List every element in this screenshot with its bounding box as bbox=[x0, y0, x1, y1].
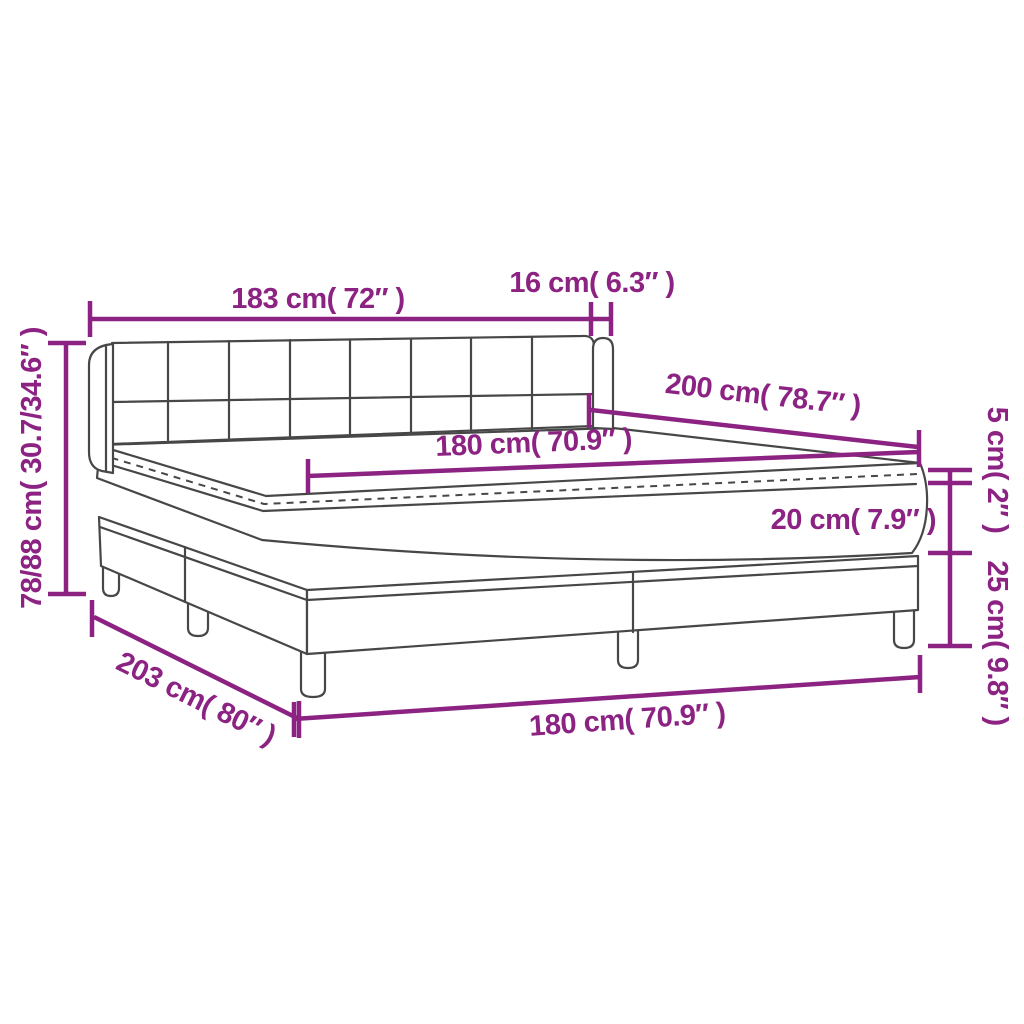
dim-mattress-thickness-label: 20 cm( 7.9″ ) bbox=[771, 504, 936, 536]
dim-line bbox=[48, 343, 86, 594]
dim-headboard-side-depth: 16 cm( 6.3″ ) bbox=[509, 267, 674, 299]
dim-topper-thickness-label: 5 cm( 2″ ) bbox=[981, 407, 1013, 534]
dim-overall-height-label: 78/88 cm( 30.7/34.6″ ) bbox=[16, 327, 48, 609]
bed-leg bbox=[618, 627, 638, 668]
headboard-left-wing bbox=[89, 344, 113, 473]
dim-base-width-label: 180 cm( 70.9″ ) bbox=[528, 697, 726, 743]
dim-headboard-side-depth-label: 16 cm( 6.3″ ) bbox=[509, 267, 674, 299]
dim-bed-length-label: 200 cm( 78.7″ ) bbox=[664, 368, 863, 422]
dim-headboard-width-label: 183 cm( 72″ ) bbox=[231, 283, 404, 315]
diagram-page: 183 cm( 72″ ) 16 cm( 6.3″ ) 200 cm( 78.7… bbox=[0, 0, 1024, 1024]
dim-base-width: 180 cm( 70.9″ ) bbox=[294, 655, 920, 743]
bed-leg bbox=[894, 607, 914, 648]
bed-dimension-diagram: 183 cm( 72″ ) 16 cm( 6.3″ ) 200 cm( 78.7… bbox=[0, 0, 1024, 1024]
dim-base-height-label: 25 cm( 9.8″ ) bbox=[981, 560, 1013, 725]
dim-line bbox=[928, 470, 972, 646]
bed-leg bbox=[301, 650, 325, 697]
headboard-right-wing bbox=[593, 338, 613, 429]
dim-overall-height: 78/88 cm( 30.7/34.6″ ) bbox=[16, 327, 86, 609]
